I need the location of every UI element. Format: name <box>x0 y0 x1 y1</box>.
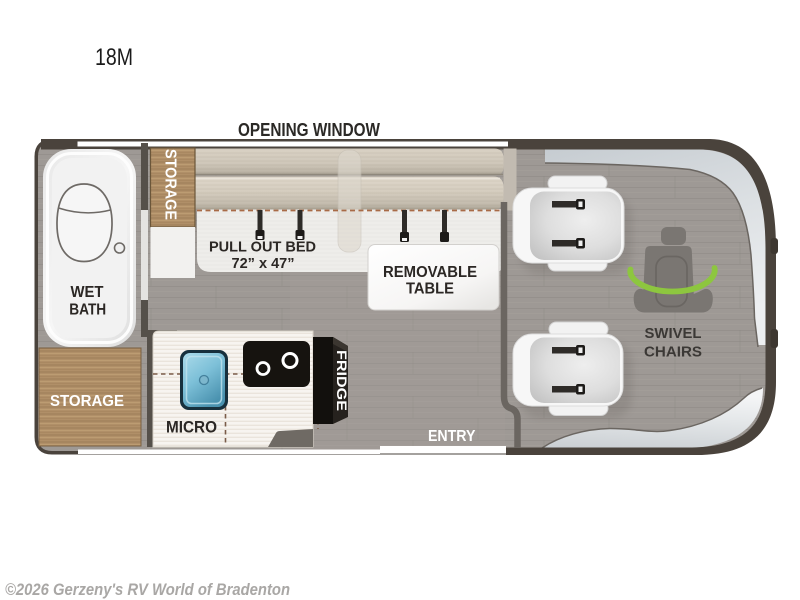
svg-text:REMOVABLE: REMOVABLE <box>383 264 477 281</box>
svg-text:STORAGE: STORAGE <box>50 393 124 410</box>
svg-text:WET: WET <box>71 284 104 301</box>
svg-text:OPENING WINDOW: OPENING WINDOW <box>238 120 380 140</box>
svg-text:72” x 47”: 72” x 47” <box>232 255 295 272</box>
svg-text:©2026 Gerzeny's RV World of Br: ©2026 Gerzeny's RV World of Bradenton <box>5 581 290 599</box>
svg-text:BATH: BATH <box>69 302 106 319</box>
svg-text:PULL OUT BED: PULL OUT BED <box>209 239 316 256</box>
svg-text:18M: 18M <box>95 44 133 71</box>
svg-text:TABLE: TABLE <box>406 281 454 298</box>
svg-text:STORAGE: STORAGE <box>162 149 179 220</box>
svg-text:CHAIRS: CHAIRS <box>644 345 702 361</box>
svg-text:SWIVEL: SWIVEL <box>645 326 702 342</box>
svg-text:FRIDGE: FRIDGE <box>334 350 349 411</box>
svg-text:ENTRY: ENTRY <box>428 428 476 445</box>
svg-text:MICRO: MICRO <box>166 418 217 437</box>
